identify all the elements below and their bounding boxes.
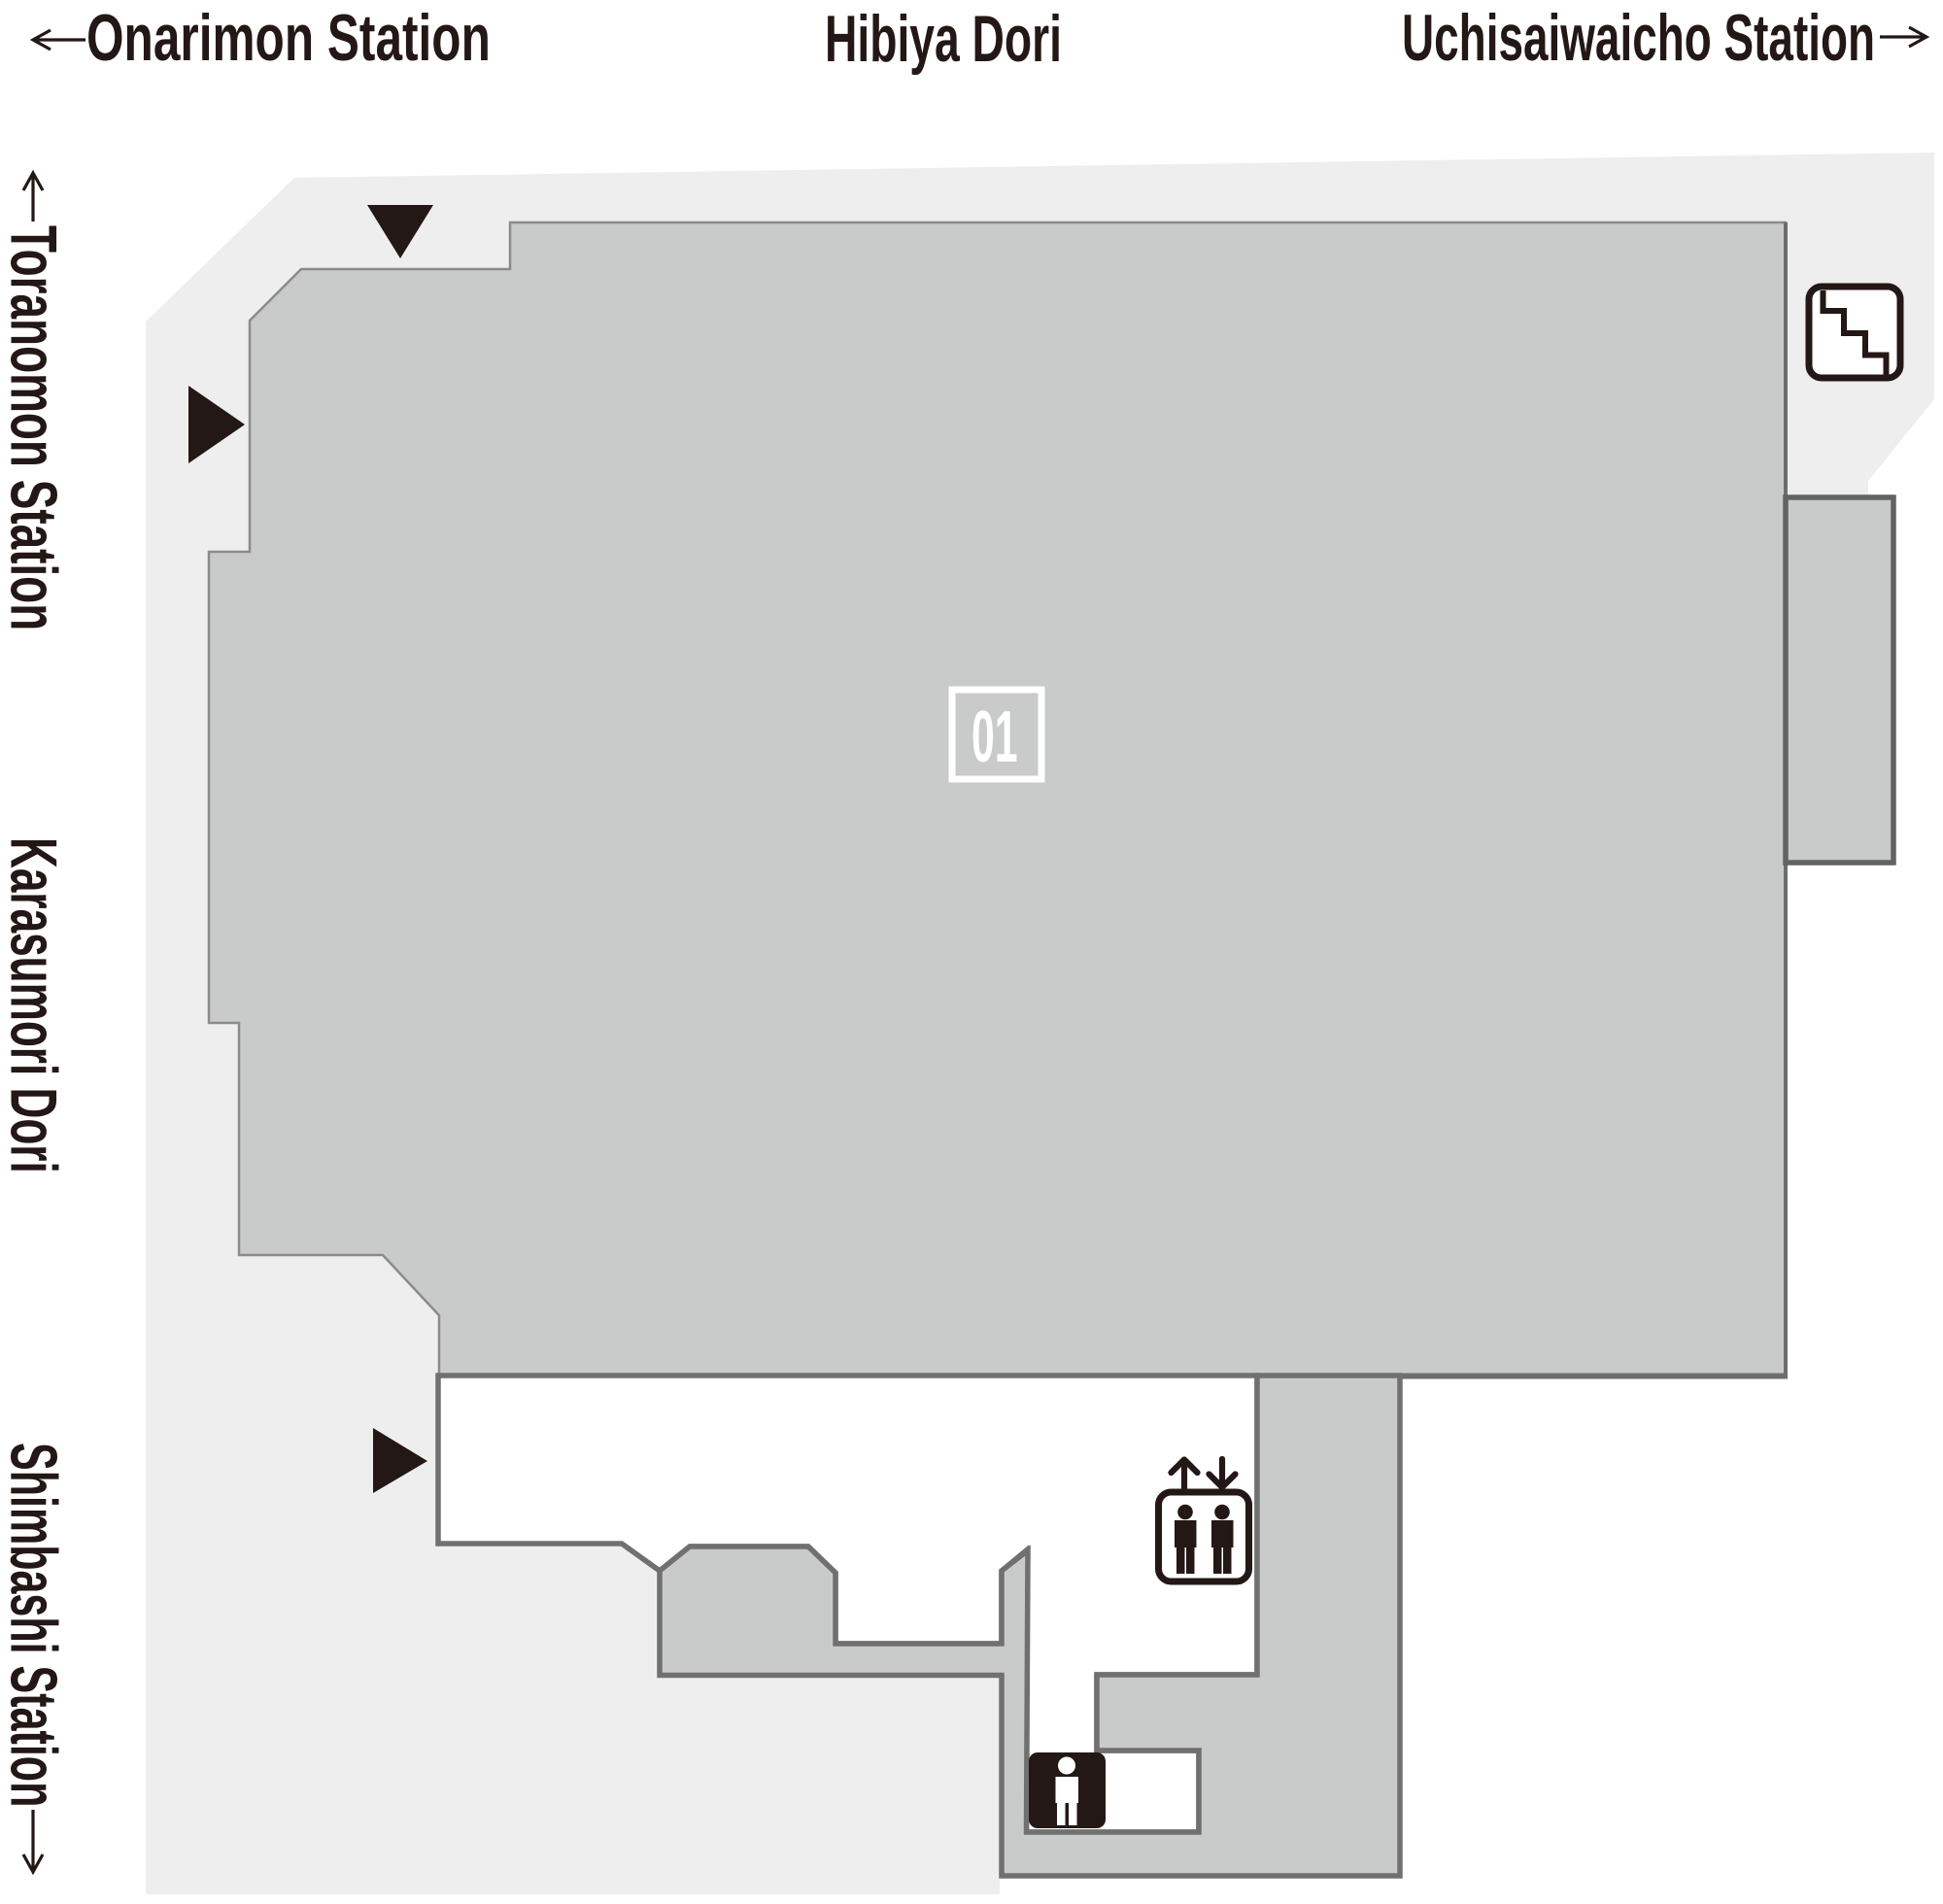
- svg-text:Toranomon Station: Toranomon Station: [0, 225, 70, 630]
- svg-text:Shimbashi Station: Shimbashi Station: [0, 1443, 70, 1807]
- svg-text:01: 01: [971, 696, 1018, 777]
- svg-text:Onarimon Station: Onarimon Station: [86, 0, 491, 75]
- svg-text:Uchisaiwaicho Station: Uchisaiwaicho Station: [1402, 1, 1875, 75]
- svg-text:Karasumori Dori: Karasumori Dori: [0, 837, 70, 1173]
- svg-text:Hibiya Dori: Hibiya Dori: [825, 2, 1062, 76]
